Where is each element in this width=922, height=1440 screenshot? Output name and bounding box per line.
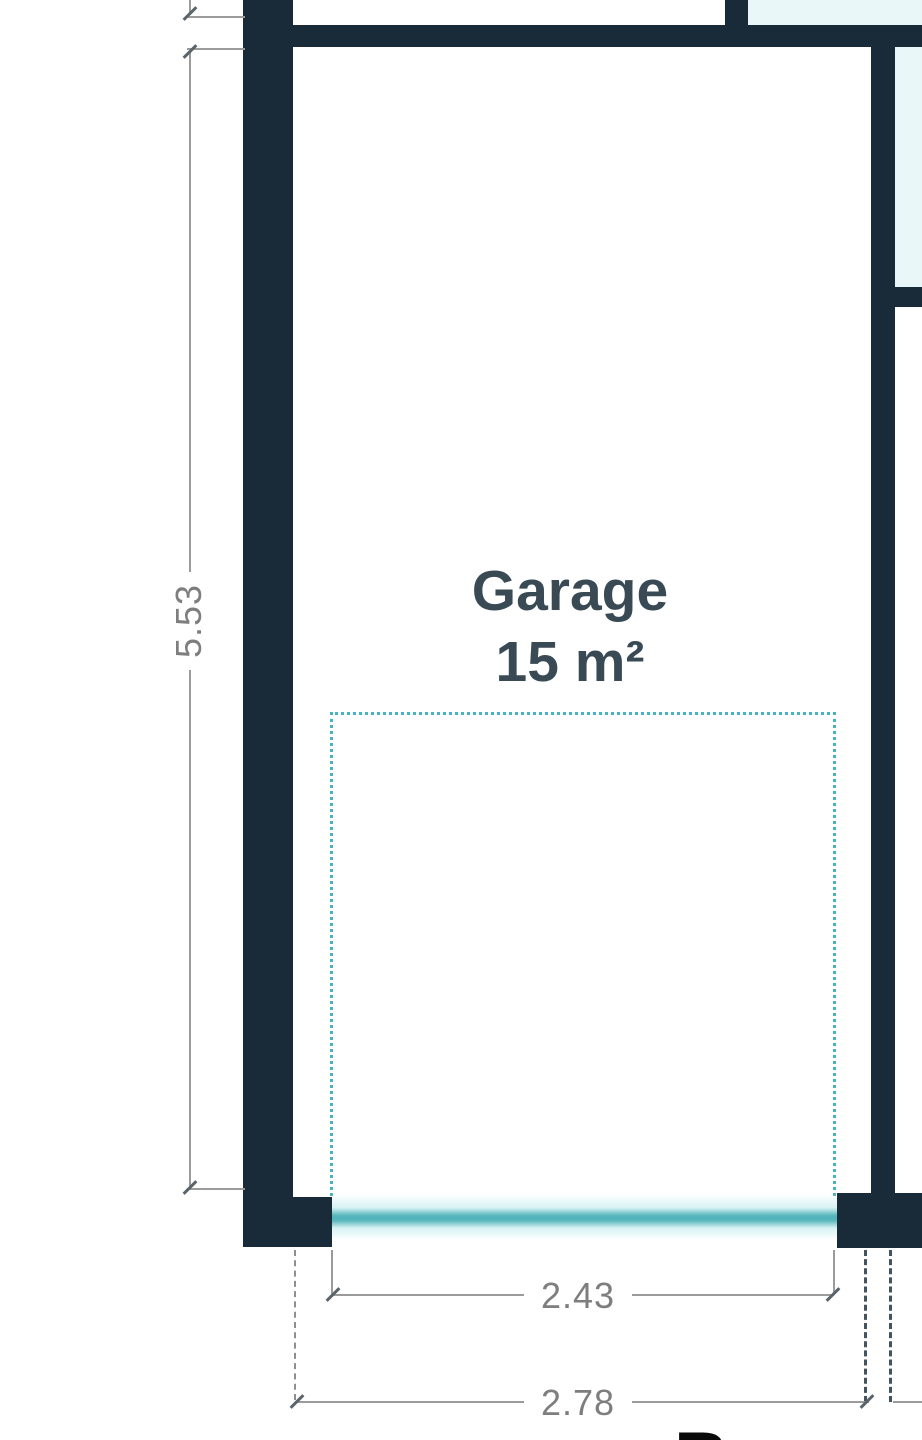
garage-door-line xyxy=(332,1194,837,1240)
wall-continuation-dashed-2 xyxy=(889,1250,892,1402)
wall-bottom-right xyxy=(837,1193,922,1248)
dim-upper-ext xyxy=(187,16,245,18)
wall-branch-right xyxy=(895,287,922,307)
dim-door-ext-left xyxy=(331,1250,333,1295)
wall-left xyxy=(243,0,293,1247)
dim-height-ext-top xyxy=(187,48,245,50)
parking-clearance-dashed-rect xyxy=(330,712,836,1196)
dim-door-ext-right xyxy=(833,1250,835,1295)
dim-opening-label: 2.78 xyxy=(524,1383,632,1423)
wall-top xyxy=(293,25,922,47)
window-strip-top xyxy=(748,0,922,25)
floor-plan: Garage 15 m² 5.53 2.43 xyxy=(0,0,922,1440)
wall-door-jamb-left xyxy=(293,1197,332,1247)
dim-height-ext-bottom xyxy=(187,1188,245,1190)
dim-neighbor-line xyxy=(893,1401,922,1403)
room-label: Garage 15 m² xyxy=(330,556,810,697)
dim-height-label: 5.53 xyxy=(158,572,220,670)
dim-opening-ext-left xyxy=(294,1250,296,1400)
wall-right xyxy=(871,45,895,1248)
wall-top-stub xyxy=(725,0,748,27)
room-name: Garage xyxy=(330,556,810,627)
partial-letter: B xyxy=(674,1422,729,1440)
dim-door-label: 2.43 xyxy=(524,1276,632,1316)
room-area: 15 m² xyxy=(330,627,810,698)
window-right xyxy=(895,47,922,287)
wall-continuation-dashed-1 xyxy=(864,1250,867,1402)
